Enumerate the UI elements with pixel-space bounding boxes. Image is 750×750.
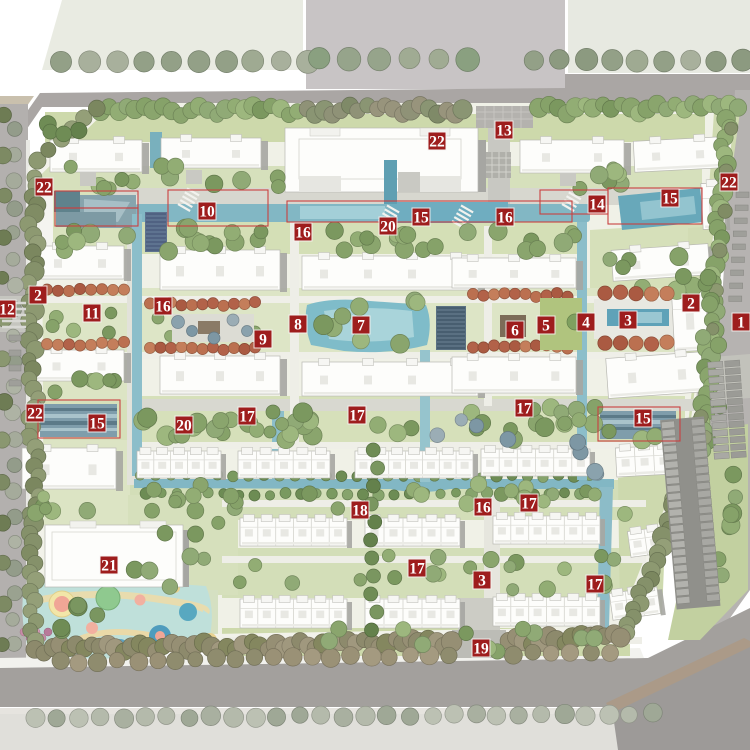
svg-text:3: 3 — [624, 312, 632, 329]
svg-text:15: 15 — [662, 190, 678, 207]
svg-text:20: 20 — [176, 417, 192, 434]
svg-text:17: 17 — [409, 560, 425, 577]
svg-text:2: 2 — [687, 295, 695, 312]
svg-text:4: 4 — [582, 314, 590, 331]
svg-text:13: 13 — [496, 122, 512, 139]
svg-text:10: 10 — [199, 203, 215, 220]
svg-text:21: 21 — [101, 557, 117, 574]
svg-text:16: 16 — [295, 224, 311, 241]
svg-text:8: 8 — [294, 316, 302, 333]
svg-text:5: 5 — [542, 317, 550, 334]
svg-text:22: 22 — [36, 179, 52, 196]
svg-text:15: 15 — [89, 415, 105, 432]
svg-text:12: 12 — [0, 301, 15, 318]
svg-text:22: 22 — [721, 174, 737, 191]
svg-text:7: 7 — [357, 317, 365, 334]
svg-text:14: 14 — [589, 196, 605, 213]
svg-text:6: 6 — [511, 322, 519, 339]
svg-text:17: 17 — [239, 408, 255, 425]
svg-text:16: 16 — [497, 209, 513, 226]
svg-text:15: 15 — [413, 209, 429, 226]
svg-text:1: 1 — [737, 314, 745, 331]
svg-text:15: 15 — [635, 410, 651, 427]
svg-text:11: 11 — [85, 305, 100, 322]
svg-text:17: 17 — [516, 400, 532, 417]
svg-text:18: 18 — [352, 502, 368, 519]
svg-text:16: 16 — [475, 499, 491, 516]
svg-text:20: 20 — [380, 218, 396, 235]
svg-text:9: 9 — [259, 331, 267, 348]
svg-text:19: 19 — [473, 640, 489, 657]
svg-text:22: 22 — [429, 133, 445, 150]
svg-text:22: 22 — [27, 405, 43, 422]
svg-text:16: 16 — [155, 298, 171, 315]
svg-text:17: 17 — [587, 576, 603, 593]
svg-text:17: 17 — [349, 407, 365, 424]
svg-text:3: 3 — [478, 572, 486, 589]
svg-text:2: 2 — [34, 287, 42, 304]
svg-text:17: 17 — [521, 495, 537, 512]
